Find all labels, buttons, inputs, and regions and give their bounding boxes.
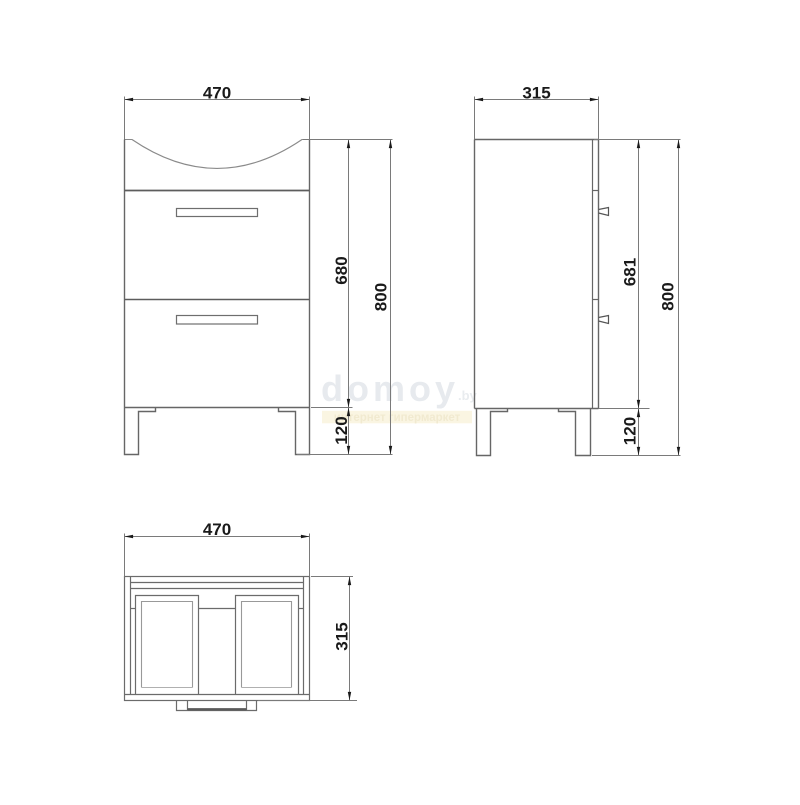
svg-text:120: 120 xyxy=(332,416,351,444)
svg-text:315: 315 xyxy=(522,83,550,102)
svg-text:120: 120 xyxy=(621,417,640,445)
svg-text:800: 800 xyxy=(659,282,678,310)
svg-text:680: 680 xyxy=(332,256,351,284)
svg-text:470: 470 xyxy=(203,520,231,539)
svg-text:681: 681 xyxy=(621,258,640,286)
svg-text:интернет гипермаркет: интернет гипермаркет xyxy=(334,412,461,424)
svg-text:315: 315 xyxy=(333,622,352,650)
svg-text:800: 800 xyxy=(372,283,391,311)
svg-text:470: 470 xyxy=(203,83,231,102)
